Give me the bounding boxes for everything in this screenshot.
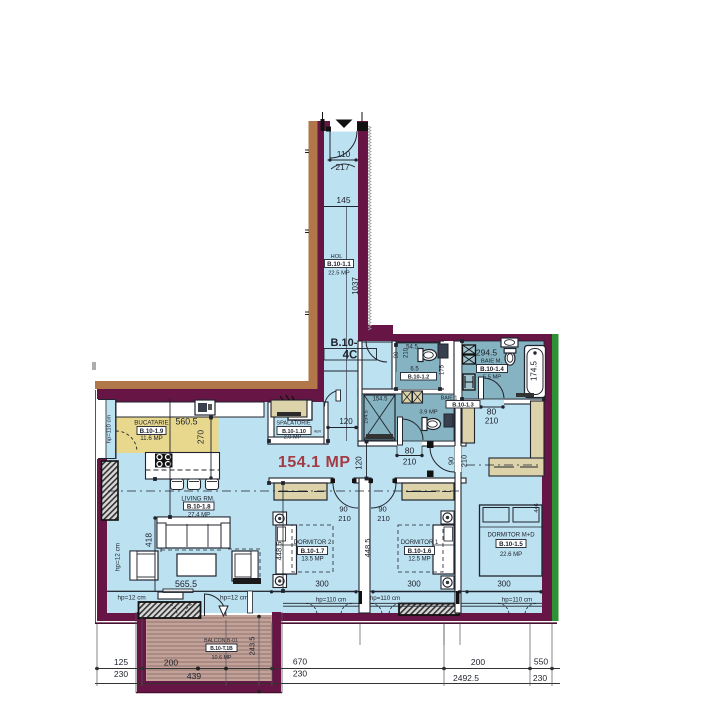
svg-text:230: 230 — [293, 669, 307, 679]
svg-text:439: 439 — [187, 671, 201, 681]
svg-text:154.5: 154.5 — [372, 397, 388, 403]
svg-text:210: 210 — [403, 458, 417, 467]
svg-text:SPALATORIE: SPALATORIE — [276, 421, 310, 427]
svg-text:110: 110 — [337, 149, 351, 159]
svg-text:LIVING RM.: LIVING RM. — [181, 496, 215, 503]
svg-text:B.10-1.4: B.10-1.4 — [480, 366, 504, 373]
svg-text:B.10-: B.10- — [331, 337, 358, 349]
svg-text:4C: 4C — [343, 350, 358, 362]
svg-text:B.10-1.6: B.10-1.6 — [408, 548, 432, 555]
svg-text:120: 120 — [339, 417, 353, 426]
svg-text:217: 217 — [335, 162, 349, 172]
svg-text:22.5 MP: 22.5 MP — [328, 271, 350, 277]
svg-text:1037: 1037 — [351, 277, 360, 295]
svg-text:DORMITOR M+D: DORMITOR M+D — [487, 533, 535, 539]
svg-text:154.1 MP: 154.1 MP — [278, 454, 350, 471]
svg-text:DORMITOR 1: DORMITOR 1 — [401, 540, 439, 546]
svg-text:90: 90 — [447, 457, 456, 465]
svg-text:6.5: 6.5 — [410, 367, 419, 373]
svg-text:210: 210 — [377, 514, 390, 523]
svg-text:80: 80 — [405, 446, 415, 456]
svg-text:90: 90 — [339, 505, 347, 514]
svg-text:80: 80 — [487, 407, 497, 417]
svg-text:22.6 MP: 22.6 MP — [500, 552, 522, 558]
svg-text:550: 550 — [534, 657, 548, 667]
svg-text:DORMITOR 2: DORMITOR 2 — [294, 540, 332, 546]
svg-text:90: 90 — [394, 351, 400, 358]
svg-text:B.10-T.1B: B.10-T.1B — [210, 646, 233, 652]
svg-text:670: 670 — [293, 657, 307, 667]
svg-text:210: 210 — [404, 347, 410, 358]
svg-text:12.5 MP: 12.5 MP — [408, 557, 430, 563]
svg-text:210: 210 — [460, 455, 469, 468]
svg-text:AER: AER — [314, 430, 322, 434]
svg-text:446: 446 — [534, 503, 540, 512]
svg-text:300: 300 — [497, 580, 511, 589]
svg-text:hp=110 cm: hp=110 cm — [502, 597, 532, 604]
svg-text:5.5 MP: 5.5 MP — [483, 375, 501, 381]
svg-text:300: 300 — [315, 580, 329, 589]
svg-text:2.0 MP: 2.0 MP — [284, 435, 302, 441]
svg-text:B.10-1.9: B.10-1.9 — [140, 428, 164, 435]
svg-text:418: 418 — [144, 533, 154, 547]
svg-text:B.10-1.3: B.10-1.3 — [452, 402, 473, 408]
svg-text:243.5: 243.5 — [248, 637, 257, 656]
svg-text:154.5: 154.5 — [364, 410, 370, 424]
svg-text:B.10-1.7: B.10-1.7 — [301, 548, 325, 555]
svg-text:B.10-1.2: B.10-1.2 — [408, 374, 429, 380]
svg-text:210: 210 — [485, 417, 499, 426]
svg-text:294.5: 294.5 — [476, 348, 498, 358]
svg-text:B.10-1.8: B.10-1.8 — [187, 503, 211, 510]
svg-text:448.5: 448.5 — [363, 539, 372, 558]
svg-text:125: 125 — [114, 657, 128, 667]
svg-text:3.9 MP: 3.9 MP — [419, 410, 437, 416]
svg-text:560.5: 560.5 — [175, 417, 197, 427]
svg-text:230: 230 — [114, 669, 128, 679]
svg-text:B.10-1.1: B.10-1.1 — [327, 261, 351, 268]
svg-text:hp=12 cm: hp=12 cm — [115, 543, 122, 571]
svg-text:hp=110 cm: hp=110 cm — [370, 595, 400, 602]
svg-text:90: 90 — [378, 505, 386, 514]
svg-text:270: 270 — [196, 430, 206, 444]
svg-text:448.5: 448.5 — [275, 542, 284, 561]
svg-text:10.6 MP: 10.6 MP — [211, 655, 231, 661]
svg-text:2492.5: 2492.5 — [453, 673, 479, 683]
svg-text:565.5: 565.5 — [175, 579, 197, 589]
svg-text:120: 120 — [355, 456, 364, 470]
svg-text:200: 200 — [164, 658, 178, 668]
svg-text:27.4 MP: 27.4 MP — [188, 513, 210, 519]
svg-text:210: 210 — [338, 514, 351, 523]
svg-text:BAIE M.: BAIE M. — [481, 359, 503, 365]
svg-text:13.5 MP: 13.5 MP — [301, 557, 323, 563]
svg-text:200: 200 — [471, 657, 485, 667]
svg-text:230: 230 — [533, 673, 547, 683]
svg-text:hp=110 cm: hp=110 cm — [316, 597, 346, 604]
svg-text:B.10-1.5: B.10-1.5 — [499, 541, 523, 548]
svg-text:BALCON B-01: BALCON B-01 — [204, 638, 238, 644]
svg-text:BUCATARIE: BUCATARIE — [134, 420, 169, 427]
svg-text:hp=12 cm: hp=12 cm — [118, 595, 146, 602]
svg-text:175: 175 — [440, 364, 446, 375]
svg-text:11.6 MP: 11.6 MP — [140, 435, 163, 442]
svg-text:145: 145 — [336, 195, 350, 205]
svg-text:hp=12 cm: hp=12 cm — [220, 595, 248, 602]
svg-text:hp=110 cm: hp=110 cm — [107, 415, 113, 444]
svg-text:300: 300 — [407, 580, 421, 589]
svg-text:174.5: 174.5 — [530, 360, 539, 381]
